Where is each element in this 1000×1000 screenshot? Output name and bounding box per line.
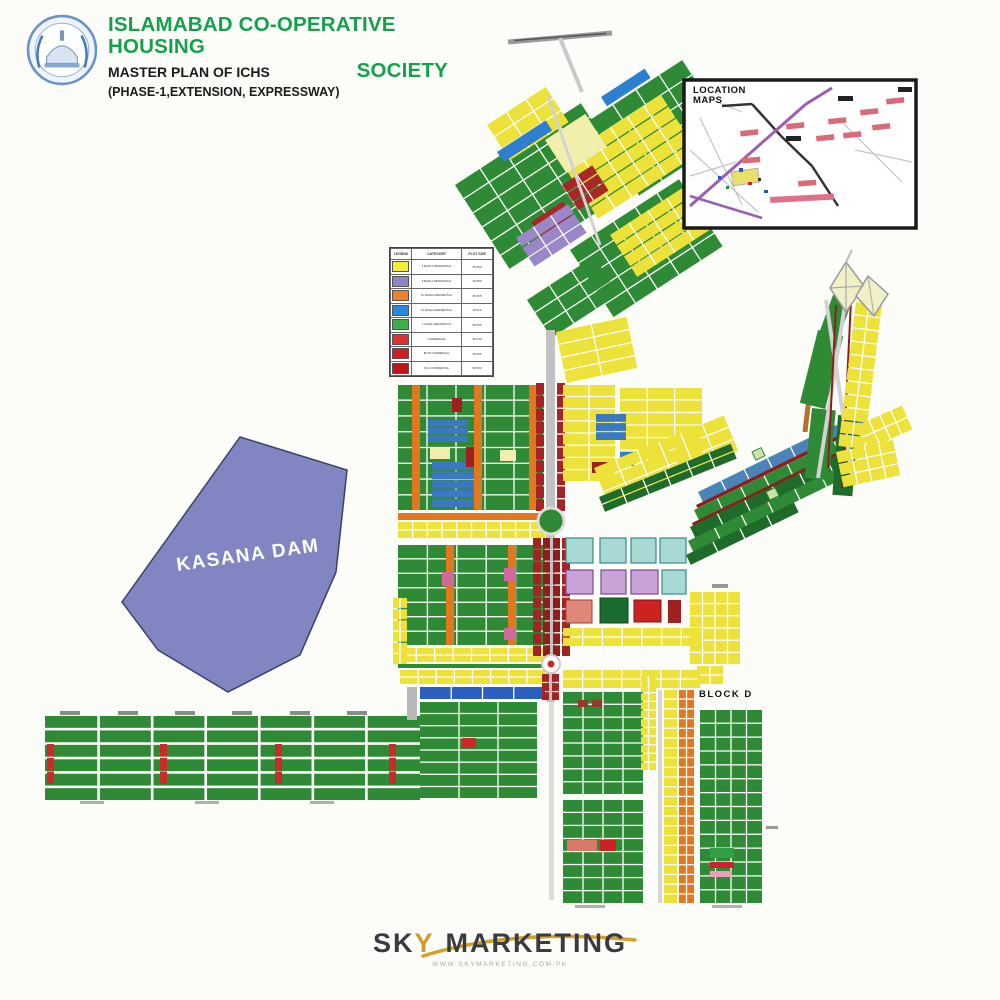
- map-block: [566, 570, 593, 594]
- brand-wordmark: SKYMARKETING: [365, 928, 635, 959]
- legend-row: COMMERCIAL30'X40': [391, 332, 493, 347]
- brand-y-gold: Y: [415, 928, 435, 958]
- phase-subtitle: (PHASE-1,EXTENSION, EXPRESSWAY): [108, 85, 448, 99]
- map-block: [838, 96, 853, 101]
- map-block: [549, 702, 554, 900]
- commercial-square: [566, 538, 593, 563]
- map-block: [232, 711, 252, 715]
- legend-swatch: [392, 276, 409, 287]
- map-block: [563, 800, 643, 903]
- legend-swatch: [392, 290, 409, 301]
- map-block: [160, 744, 167, 784]
- map-block: [80, 801, 104, 804]
- society-logo-icon: [26, 14, 98, 86]
- map-block: [710, 871, 732, 877]
- map-block: [575, 905, 605, 908]
- legend-row: BLVD COMMERCIAL40'X60': [391, 347, 493, 362]
- brand-url: WWW.SKYMARKETING.COM.PK: [365, 961, 635, 968]
- legend-swatch: [392, 363, 409, 374]
- legend-row: 14 MARLA RESIDENTIAL40'X70': [391, 303, 493, 318]
- map-block: [407, 687, 417, 720]
- map-block: [786, 136, 801, 141]
- legend-row: 1 KANAL RESIDENTIAL50'X90': [391, 318, 493, 333]
- map-block: [412, 385, 420, 510]
- map-block: [446, 545, 454, 645]
- map-block: [504, 628, 515, 640]
- block-d-label: BLOCK D: [699, 689, 753, 700]
- map-block: [748, 182, 752, 185]
- master-plan-subtitle: MASTER PLAN OF ICHS: [108, 64, 270, 80]
- map-block: [563, 670, 700, 688]
- map-block: [712, 584, 728, 588]
- south-sector: [563, 692, 643, 794]
- map-block: [432, 462, 474, 507]
- map-block: [118, 711, 138, 715]
- roundabout-north: [538, 508, 564, 534]
- legend-box: LEGEND CATEGORY PLOT SIZE 5 MARLA RESIDE…: [389, 247, 494, 377]
- map-block: [474, 385, 482, 510]
- map-block: [662, 570, 686, 594]
- map-block: [389, 744, 396, 784]
- map-block: [679, 690, 694, 903]
- map-block: [175, 711, 195, 715]
- map-block: [898, 87, 912, 92]
- map-block: [739, 168, 743, 172]
- map-block: [347, 711, 367, 715]
- map-block: [578, 700, 588, 707]
- map-block: [275, 744, 282, 784]
- map-block: [601, 570, 626, 594]
- map-block: [400, 670, 545, 684]
- map-block: [393, 598, 407, 664]
- map-block: [668, 600, 681, 623]
- legend-rows: 5 MARLA RESIDENTIAL25'X50'8 MARLA RESIDE…: [391, 260, 493, 376]
- map-block: [529, 385, 537, 510]
- map-block: [660, 538, 686, 563]
- legend-header-size: PLOT SIZE: [462, 249, 493, 260]
- map-block: [60, 711, 80, 715]
- legend-header-row: LEGEND CATEGORY PLOT SIZE: [391, 249, 493, 260]
- society-title: ISLAMABAD CO-OPERATIVE HOUSING: [108, 14, 448, 58]
- header: ISLAMABAD CO-OPERATIVE HOUSING MASTER PL…: [26, 14, 448, 99]
- legend-header-category: CATEGORY: [411, 249, 461, 260]
- map-block: [641, 676, 656, 770]
- legend-row: 5 MARLA RESIDENTIAL25'X50': [391, 260, 493, 275]
- map-block: [430, 448, 450, 459]
- map-block: [500, 450, 516, 461]
- map-block: [462, 738, 476, 748]
- legend-row: 8 MARLA RESIDENTIAL30'X60': [391, 274, 493, 289]
- map-block: [600, 840, 616, 851]
- map-block: [563, 628, 701, 646]
- location-maps-title: LOCATION MAPS: [693, 86, 746, 106]
- map-block: [712, 905, 742, 908]
- legend-swatch: [392, 305, 409, 316]
- map-block: [310, 801, 334, 804]
- map-block: [398, 522, 545, 538]
- map-block: [398, 513, 545, 520]
- map-block: [596, 414, 626, 440]
- map-block: [47, 744, 54, 784]
- southwest-sector: [398, 545, 545, 645]
- map-block: [428, 420, 468, 442]
- legend-swatch: [392, 319, 409, 330]
- legend-row: 10 MARLA RESIDENTIAL35'X65': [391, 289, 493, 304]
- map-block: [442, 572, 454, 586]
- map-block: [420, 687, 545, 699]
- map-block: [758, 178, 761, 181]
- map-block: [566, 600, 592, 623]
- legend-swatch: [392, 261, 409, 272]
- map-block: [466, 447, 474, 467]
- map-block: [398, 664, 545, 668]
- legend-swatch: [392, 334, 409, 345]
- master-plan-map: [0, 0, 1000, 1000]
- map-block: [420, 702, 537, 798]
- map-block: [592, 700, 602, 707]
- map-block: [766, 826, 778, 829]
- map-block: [752, 448, 765, 460]
- map-block: [634, 600, 661, 622]
- map-block: [567, 840, 597, 851]
- map-block: [846, 250, 852, 262]
- map-block: [710, 862, 734, 868]
- map-block: [600, 538, 626, 563]
- map-block: [552, 674, 559, 700]
- map-block: [664, 690, 677, 903]
- map-block: [631, 538, 656, 563]
- footer-brand: SKYMARKETING WWW.SKYMARKETING.COM.PK: [365, 928, 635, 968]
- map-block: [697, 666, 723, 684]
- map-block: [398, 648, 545, 662]
- map-block: [658, 690, 662, 903]
- map-block: [764, 190, 768, 193]
- map-block: [710, 848, 734, 858]
- legend-header-swatch: LEGEND: [391, 249, 412, 260]
- map-block: [290, 711, 310, 715]
- map-block: [542, 674, 549, 700]
- map-block: [536, 383, 544, 511]
- map-block: [452, 398, 462, 412]
- map-block: [195, 801, 219, 804]
- map-block: [504, 568, 515, 581]
- map-block: [560, 38, 582, 92]
- map-block: [631, 570, 658, 594]
- map-block: [600, 598, 628, 623]
- map-block: [718, 176, 721, 179]
- legend-swatch: [392, 348, 409, 359]
- map-block: [548, 661, 555, 668]
- west-strip: [45, 716, 420, 800]
- society-title-line2: SOCIETY: [357, 60, 448, 82]
- map-block: [726, 186, 729, 189]
- legend-row: PH-1 COMMERCIAL30'X60': [391, 361, 493, 376]
